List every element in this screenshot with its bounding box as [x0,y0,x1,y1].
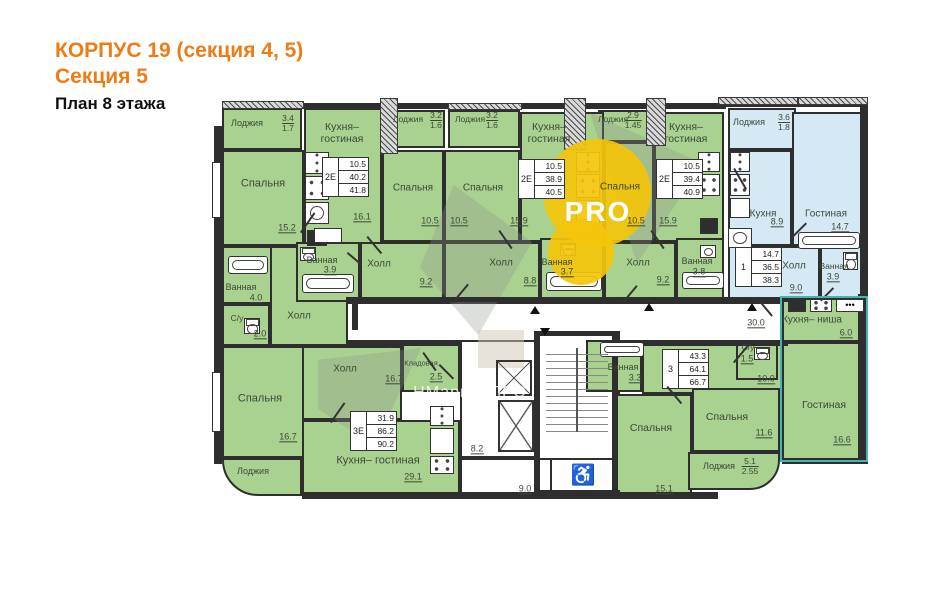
room-label: Лоджия [231,118,263,128]
room-label: Ванная [682,256,713,266]
area-value: 10.0 [757,373,775,384]
room-label: Лоджия [393,115,423,125]
stairs-stringer [576,348,578,432]
door-arrow [644,303,654,311]
lodge-dimension: 5.12.55 [742,457,759,477]
room [382,150,444,242]
room-label: Кухня– гостиная [336,455,419,468]
apartment-stamp: 2Е10.539.440.9 [656,159,703,199]
room-label: Спальня [706,411,748,423]
room-label: Лоджия [598,115,628,125]
apartment-stamp: 2Е10.540.241.8 [322,157,369,197]
area-value: 1.5 [741,353,754,364]
lodge-dimension: 3.21.6 [486,111,498,131]
apartment-areas: 10.539.440.9 [673,160,702,198]
window [212,372,221,432]
area-value: 3.8 [693,266,706,277]
wc-bowl [757,352,768,360]
room [616,394,692,496]
apartment-type: 1 [736,248,752,286]
room-label: Спальня [238,393,282,406]
stamp-area-value: 66.7 [679,376,708,388]
room-label: Лоджия [733,117,765,127]
apartment-type: 2Е [657,160,673,198]
stamp-area-value: 90.2 [367,438,396,450]
area-value: 4.0 [250,292,263,303]
apartment-areas: 10.538.940.5 [535,160,564,198]
area-value: 3.9 [827,271,840,282]
area-value: 10.5 [627,215,645,226]
stamp-area-value: 38.3 [752,274,781,286]
area-value: 9.2 [420,276,433,287]
apartment-areas: 31.986.290.2 [367,412,396,450]
counter-icon [430,428,454,454]
tub-inner [604,346,640,353]
area-value: 3.9 [324,264,337,275]
area-value: 3.3 [629,372,642,383]
stamp-area-value: 39.4 [673,173,702,186]
area-value: 3.7 [561,266,574,277]
lodge-dimension: 3.61.8 [778,113,790,133]
tub-inner [306,278,350,289]
area-value: 15.9 [659,215,677,226]
stove-icon [430,456,454,474]
stamp-area-value: 40.2 [339,171,368,184]
bathtub-icon [798,232,860,249]
room-label: Гостиная [805,208,847,220]
room-label: Холл [287,310,311,322]
wall-segment [448,103,522,110]
room-label: Ванная [226,282,257,292]
stamp-area-value: 10.5 [673,160,702,173]
window [212,162,221,218]
area-value: 10.5 [450,215,468,226]
apartment-type: 3Е [351,412,367,450]
stamp-area-value: 43.3 [679,350,708,363]
wall-segment [798,97,868,105]
area-value: 2.0 [254,328,267,339]
apartment-type: 3 [663,350,679,388]
stamp-area-value: 40.5 [535,186,564,198]
stairs-icon [546,348,608,432]
apartment-stamp: 343.364.166.7 [662,349,709,389]
wall-segment [346,341,462,346]
area-value: 16.7 [279,431,297,442]
area-value: 8.9 [771,216,784,227]
stamp-area-value: 10.5 [535,160,564,173]
door-arrow [747,303,757,311]
area-value: 16.1 [353,211,371,222]
logo-circle [548,219,614,285]
bathtub-icon [228,256,268,274]
lodge-dimension: 2.91.45 [625,111,642,131]
area-value: 14.7 [831,221,849,232]
area-value: 11.6 [756,427,773,438]
room-label: Лоджия [237,466,269,476]
area-value: 8.2 [471,443,484,454]
wall-segment [352,304,358,330]
stamp-area-value: 86.2 [367,425,396,438]
area-value: 15.9 [510,215,528,226]
toilet-icon [754,347,770,360]
room [222,458,302,496]
counter-icon [730,198,750,218]
area-value: 15.1 [655,483,673,494]
lodge-dimension: 3.21.6 [430,111,442,131]
wall-segment [860,101,868,301]
bathtub-icon [302,274,354,293]
area-value: 9.0 [790,282,803,293]
studio-outline [780,296,868,462]
area-value: 2.5 [430,371,443,382]
room-label: Кухня– гостиная [528,121,571,145]
wall-segment [380,98,398,154]
stamp-area-value: 41.8 [339,184,368,196]
apartment-type: 2Е [323,158,339,196]
room-label: Кухня– гостиная [665,121,708,145]
area-value: 10.5 [421,215,439,226]
room-label: С/у [231,314,244,324]
door-arrow [540,328,550,336]
room-label: Спальня [241,178,285,191]
wall-segment [718,97,798,105]
sink-bowl [733,232,747,245]
stamp-area-value: 31.9 [367,412,396,425]
site-watermark: НМаркет.ПРО [413,384,527,402]
sink-icon [728,228,752,248]
room-label: Спальня [463,182,503,194]
wall-segment [646,98,666,146]
room-label: Спальня [393,182,433,194]
apartment-type: 2Е [519,160,535,198]
stamp-area-value: 38.9 [535,173,564,186]
room-label: Холл [367,258,391,270]
door-arrow [530,306,540,314]
stamp-area-value: 36.5 [752,261,781,274]
fridge-icon [430,406,454,426]
room-label: Лоджия [703,461,735,471]
tub-inner [802,236,856,245]
stamp-area-value: 40.9 [673,186,702,198]
tub-inner [232,260,264,270]
apartment-stamp: 114.736.538.3 [735,247,782,287]
room-label: Лоджия [455,115,485,125]
counter-icon [314,228,342,243]
area-value: 16.7 [385,373,403,384]
stamp-area-value: 10.5 [339,158,368,171]
room-label: Холл [782,260,806,272]
room-label: Спальня [600,181,640,193]
apartment-stamp: 3Е31.986.290.2 [350,411,397,451]
apartment-areas: 14.736.538.3 [752,248,781,286]
room-label: Ванная [608,362,639,372]
apartment-areas: 43.364.166.7 [679,350,708,388]
room-label: Спальня [630,422,672,434]
stamp-area-value: 14.7 [752,248,781,261]
logo-text: PRO [565,196,632,228]
apartment-areas: 10.540.241.8 [339,158,368,196]
wall-segment [534,331,540,495]
elevator-icon [498,400,534,452]
wall-segment [222,101,304,109]
wall-segment [346,297,790,302]
lodge-dimension: 3.41.7 [282,114,294,134]
area-value: 8.8 [524,275,537,286]
area-value: 9.0 [519,483,532,494]
apartment-stamp: 2Е10.538.940.5 [518,159,565,199]
stamp-area-value: 64.1 [679,363,708,376]
black-icon [700,218,718,234]
area-value: 30.0 [747,317,765,328]
floor-plan: •••PROЛоджияСпальня15.2Кухня– гостиная16… [0,0,941,600]
area-value: 15.2 [278,222,296,233]
room-label: Холл [489,257,513,269]
area-value: 9.2 [657,274,670,285]
room-label: Холл [626,257,650,269]
room-label: Холл [333,363,357,375]
wall-segment [536,490,620,496]
room-label: Кухня– гостиная [321,121,364,145]
wheelchair-icon: ♿ [571,465,596,488]
area-value: 29.1 [404,471,422,482]
